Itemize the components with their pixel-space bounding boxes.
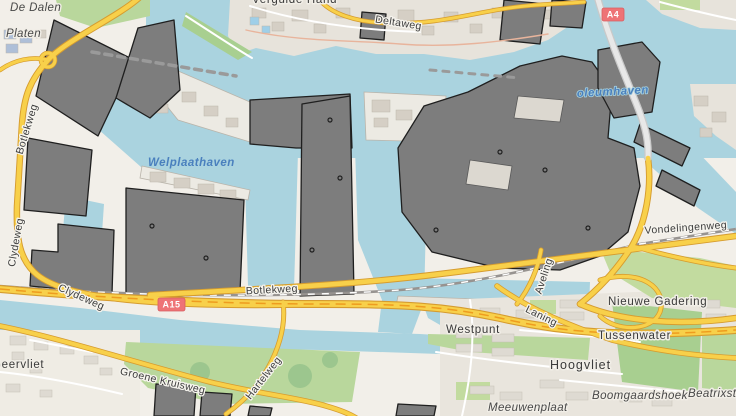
label-vergulde-hand: Vergulde Hand [252,0,337,6]
label-westpunt: Westpunt [446,324,500,336]
label-tussenwater: Tussenwater [598,330,671,342]
route-badge-a15: A15 [158,298,185,311]
route-badge-a15-text: A15 [162,300,180,310]
label-beatrixst: Beatrixst [688,388,736,400]
label-platen: Platen [6,28,41,40]
label-boomgaardshoek: Boomgaardshoek [592,390,689,402]
label-de-dalen: De Dalen [10,2,61,14]
map-canvas[interactable]: Vergulde Hand De Dalen Platen Deltaweg B… [0,0,736,416]
label-nieuwe-gadering: Nieuwe Gadering [608,296,707,308]
route-badge-a4-text: A4 [607,10,620,20]
label-welplaathaven: Welplaathaven [148,157,235,169]
label-hoogvliet: Hoogvliet [550,358,611,372]
label-geervliet: Geervliet [0,359,44,371]
route-badge-a4: A4 [602,8,624,21]
label-meeuwenplaat: Meeuwenplaat [488,402,568,414]
